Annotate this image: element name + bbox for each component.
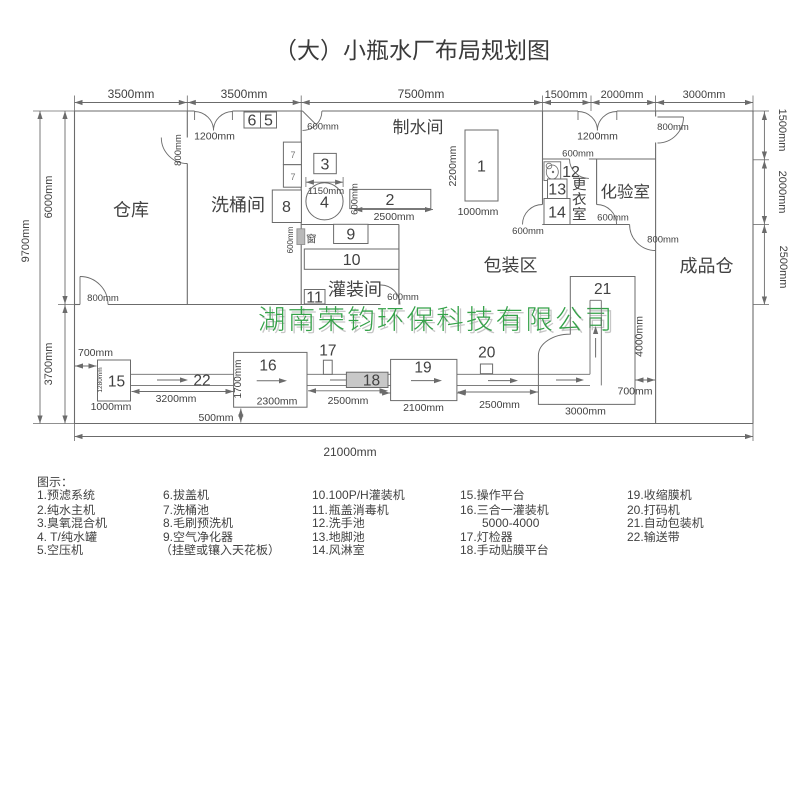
svg-text:4: 4 xyxy=(320,195,329,212)
svg-text:8.: 8. xyxy=(163,516,173,530)
svg-text:14.: 14. xyxy=(312,543,329,557)
svg-text:13.: 13. xyxy=(312,530,329,544)
svg-text:10: 10 xyxy=(343,252,361,269)
svg-text:13: 13 xyxy=(548,182,566,199)
svg-text:11: 11 xyxy=(306,290,323,307)
svg-text:2200mm: 2200mm xyxy=(447,145,459,186)
svg-text:10.100P/H: 10.100P/H xyxy=(312,488,369,502)
svg-text:800mm: 800mm xyxy=(657,122,689,133)
svg-text:3200mm: 3200mm xyxy=(156,393,197,405)
svg-text:2300mm: 2300mm xyxy=(257,396,298,408)
svg-text:3700mm: 3700mm xyxy=(43,343,55,386)
svg-text:11.: 11. xyxy=(312,503,328,517)
svg-text:14: 14 xyxy=(548,204,566,221)
svg-text:800mm: 800mm xyxy=(87,293,119,304)
svg-text:2500mm: 2500mm xyxy=(479,399,520,411)
svg-text:800mm: 800mm xyxy=(647,235,679,246)
svg-text:6: 6 xyxy=(248,113,257,130)
svg-text:1500mm: 1500mm xyxy=(545,89,588,101)
svg-text:15: 15 xyxy=(108,373,125,390)
svg-text:1280mm: 1280mm xyxy=(97,367,104,392)
svg-text:3000mm: 3000mm xyxy=(683,89,726,101)
svg-text:5: 5 xyxy=(264,113,273,130)
svg-text:21.: 21. xyxy=(627,516,644,530)
svg-text:600mm: 600mm xyxy=(512,226,544,237)
svg-text:1500mm: 1500mm xyxy=(776,109,788,152)
svg-text:4000mm: 4000mm xyxy=(634,316,646,357)
svg-text:1000mm: 1000mm xyxy=(458,206,499,218)
svg-text:18.: 18. xyxy=(460,543,477,557)
svg-text:600mm: 600mm xyxy=(597,213,629,224)
svg-text:1.: 1. xyxy=(37,488,47,502)
svg-text:1200mm: 1200mm xyxy=(577,131,618,143)
svg-text:2500mm: 2500mm xyxy=(777,246,789,289)
svg-text:22.: 22. xyxy=(627,530,644,544)
svg-text:9: 9 xyxy=(346,227,355,244)
svg-text:21: 21 xyxy=(594,281,611,298)
svg-text:20: 20 xyxy=(478,344,496,361)
svg-text:600mm: 600mm xyxy=(387,292,419,303)
svg-text:7: 7 xyxy=(290,150,295,160)
svg-text:2: 2 xyxy=(386,192,395,209)
svg-text:16: 16 xyxy=(259,357,276,374)
svg-text:3000mm: 3000mm xyxy=(565,406,606,418)
svg-text:17.: 17. xyxy=(460,530,477,544)
svg-text:2.: 2. xyxy=(37,503,47,517)
svg-text:9700mm: 9700mm xyxy=(20,220,32,263)
svg-text:8: 8 xyxy=(282,199,291,216)
svg-text:2100mm: 2100mm xyxy=(403,402,444,414)
svg-text:600mm: 600mm xyxy=(562,149,594,160)
svg-text:3500mm: 3500mm xyxy=(108,87,155,101)
svg-text:19.: 19. xyxy=(627,488,644,502)
svg-text:700mm: 700mm xyxy=(617,386,652,398)
svg-text:18: 18 xyxy=(363,373,380,390)
svg-text:6.: 6. xyxy=(163,488,173,502)
svg-text:5000-4000: 5000-4000 xyxy=(482,516,540,530)
svg-text:2500mm: 2500mm xyxy=(328,395,369,407)
svg-text:800mm: 800mm xyxy=(173,134,184,166)
svg-text:2000mm: 2000mm xyxy=(601,89,644,101)
svg-text:15.: 15. xyxy=(460,488,477,502)
svg-text:16.: 16. xyxy=(460,503,477,517)
svg-text:1700mm: 1700mm xyxy=(233,360,244,399)
svg-text:19: 19 xyxy=(414,360,431,377)
svg-text:22: 22 xyxy=(193,372,210,389)
svg-text:2500mm: 2500mm xyxy=(374,211,415,223)
svg-text:12.: 12. xyxy=(312,516,329,530)
svg-text:1000mm: 1000mm xyxy=(91,401,132,413)
svg-text:4. T/: 4. T/ xyxy=(37,530,61,544)
svg-text:3500mm: 3500mm xyxy=(221,87,268,101)
svg-text:7.: 7. xyxy=(163,503,173,517)
svg-text:7500mm: 7500mm xyxy=(398,87,445,101)
svg-text:600mm: 600mm xyxy=(286,226,295,253)
svg-text:500mm: 500mm xyxy=(198,412,233,424)
svg-text:5.: 5. xyxy=(37,543,47,557)
svg-text:20.: 20. xyxy=(627,503,644,517)
svg-text:9.: 9. xyxy=(163,530,173,544)
svg-text:17: 17 xyxy=(319,342,336,359)
svg-text:7: 7 xyxy=(290,172,295,182)
svg-text:6000mm: 6000mm xyxy=(43,176,55,219)
svg-text:1: 1 xyxy=(477,158,486,175)
svg-text:700mm: 700mm xyxy=(78,347,113,359)
svg-text:12: 12 xyxy=(562,164,580,181)
svg-text:3: 3 xyxy=(321,157,330,174)
svg-text:3.: 3. xyxy=(37,516,47,530)
svg-text:2000mm: 2000mm xyxy=(776,171,788,214)
svg-text:1200mm: 1200mm xyxy=(194,131,235,143)
svg-text:600mm: 600mm xyxy=(307,122,339,133)
svg-text:21000mm: 21000mm xyxy=(323,445,376,459)
